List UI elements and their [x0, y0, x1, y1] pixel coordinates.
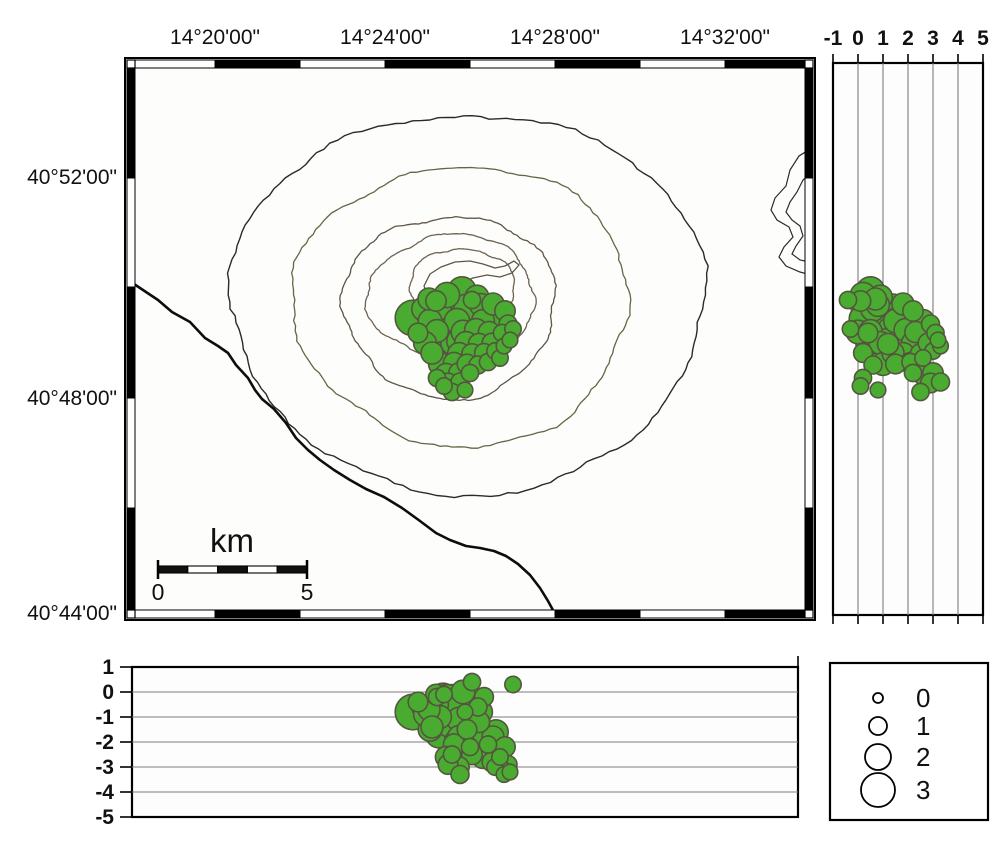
- earthquake-hypocenter: [451, 766, 469, 784]
- earthquake-hypocenter: [505, 676, 521, 692]
- lon-tick-label: 14°20'00": [170, 26, 260, 49]
- frame-corner-box: [127, 60, 135, 68]
- legend-magnitude-circle: [873, 693, 883, 703]
- scalebar-unit-label: km: [210, 522, 254, 559]
- earthquake-hypocenter: [436, 686, 452, 702]
- lat-tick-label: 40°52'00": [27, 166, 117, 189]
- lon-tick-label: 14°32'00": [680, 26, 770, 49]
- frame-border-segment: [127, 508, 135, 610]
- earthquake-hypocenter: [502, 764, 518, 780]
- depth-tick-label: -1: [95, 706, 114, 729]
- bottom-depth-panel: 1 0 -1 -2 -3 -4 -5: [95, 656, 798, 829]
- frame-border-segment: [127, 398, 135, 508]
- frame-border-segment: [470, 60, 555, 68]
- frame-border-segment: [127, 68, 135, 178]
- earthquake-hypocenter: [457, 704, 473, 720]
- scalebar-segment: [158, 566, 188, 573]
- scalebar-segment: [188, 566, 218, 573]
- frame-corner-box: [805, 60, 813, 68]
- frame-border-segment: [640, 60, 725, 68]
- scalebar-start-label: 0: [152, 579, 165, 605]
- earthquake-hypocenter: [904, 364, 921, 381]
- frame-border-segment: [127, 178, 135, 287]
- frame-border-segment: [215, 610, 300, 618]
- earthquake-hypocenter: [463, 673, 480, 690]
- earthquake-hypocenter: [421, 716, 443, 738]
- earthquake-epicenter: [457, 382, 473, 398]
- right-depth-panel: -1 0 1 2 3 4 5: [824, 27, 990, 624]
- depth-tick-label: 4: [952, 27, 964, 50]
- earthquake-hypocenter: [877, 333, 898, 354]
- frame-border-segment: [555, 60, 640, 68]
- lon-tick-label: 14°28'00": [510, 26, 600, 49]
- frame-border-segment: [805, 178, 813, 287]
- earthquake-hypocenter: [903, 301, 923, 321]
- depth-tick-label: -5: [95, 806, 114, 829]
- figure-canvas: 14°20'00" 14°24'00" 14°28'00" 14°32'00" …: [0, 0, 1000, 849]
- frame-border-segment: [805, 398, 813, 508]
- earthquake-hypocenter: [870, 382, 886, 398]
- main-map: 14°20'00" 14°24'00" 14°28'00" 14°32'00" …: [27, 26, 815, 625]
- scalebar-segment: [247, 566, 277, 573]
- frame-border-segment: [725, 60, 805, 68]
- earthquake-hypocenter: [858, 323, 878, 343]
- frame-border-segment: [127, 287, 135, 398]
- depth-tick-label: -3: [95, 756, 114, 779]
- earthquake-epicenter: [502, 332, 518, 348]
- lon-tick-label: 14°24'00": [340, 26, 430, 49]
- depth-tick-label: 0: [102, 681, 114, 704]
- frame-border-segment: [805, 68, 813, 178]
- frame-border-segment: [805, 287, 813, 398]
- seismicity-figure: 14°20'00" 14°24'00" 14°28'00" 14°32'00" …: [0, 0, 1000, 849]
- frame-border-segment: [300, 60, 385, 68]
- earthquake-hypocenter: [912, 383, 929, 400]
- legend-frame: [830, 663, 988, 820]
- earthquake-hypocenter: [839, 291, 856, 308]
- depth-tick-label: 1: [102, 656, 114, 679]
- frame-border-segment: [805, 508, 813, 610]
- legend-magnitude-circle: [861, 773, 895, 807]
- depth-tick-label: -1: [824, 27, 843, 50]
- frame-border-segment: [555, 610, 640, 618]
- earthquake-hypocenter: [915, 350, 931, 366]
- lat-tick-label: 40°44'00": [27, 602, 117, 625]
- legend-mag-label: 2: [916, 742, 930, 772]
- frame-border-segment: [385, 610, 470, 618]
- legend-mag-label: 3: [916, 775, 930, 805]
- legend-mag-label: 1: [916, 711, 930, 741]
- frame-corner-box: [127, 610, 135, 618]
- legend-mag-label: 0: [916, 683, 930, 713]
- frame-border-segment: [470, 610, 555, 618]
- magnitude-legend: 0 1 2 3: [830, 663, 988, 820]
- earthquake-hypocenter: [930, 332, 946, 348]
- earthquake-epicenter: [421, 342, 443, 364]
- depth-tick-label: 3: [927, 27, 939, 50]
- earthquake-epicenter: [461, 364, 478, 381]
- earthquake-hypocenter: [492, 749, 508, 765]
- earthquake-hypocenter: [461, 738, 478, 755]
- earthquake-epicenter: [463, 291, 480, 308]
- depth-tick-label: 0: [852, 27, 864, 50]
- scalebar-end-label: 5: [301, 579, 314, 605]
- earthquake-hypocenter: [842, 321, 858, 337]
- earthquake-hypocenter: [443, 746, 460, 763]
- depth-tick-label: 2: [902, 27, 914, 50]
- earthquake-hypocenter: [932, 373, 950, 391]
- depth-tick-label: 5: [977, 27, 989, 50]
- depth-tick-label: -2: [95, 731, 114, 754]
- frame-border-segment: [640, 610, 725, 618]
- scalebar-segment: [218, 566, 248, 573]
- frame-corner-box: [805, 610, 813, 618]
- earthquake-hypocenter: [852, 378, 868, 394]
- earthquake-hypocenter: [457, 720, 477, 740]
- depth-tick-label: -4: [95, 781, 114, 804]
- frame-border-segment: [135, 60, 215, 68]
- frame-border-segment: [215, 60, 300, 68]
- earthquake-hypocenter: [408, 692, 428, 712]
- lat-tick-label: 40°48'00": [27, 387, 117, 410]
- earthquake-epicenter: [436, 378, 452, 394]
- depth-tick-label: 1: [877, 27, 889, 50]
- earthquake-epicenter: [426, 291, 446, 311]
- legend-magnitude-circle: [869, 717, 887, 735]
- frame-border-segment: [300, 610, 385, 618]
- scalebar-segment: [277, 566, 307, 573]
- frame-border-segment: [135, 610, 215, 618]
- legend-magnitude-circle: [865, 744, 891, 770]
- earthquake-epicenter: [408, 323, 428, 343]
- frame-border-segment: [725, 610, 805, 618]
- frame-border-segment: [385, 60, 470, 68]
